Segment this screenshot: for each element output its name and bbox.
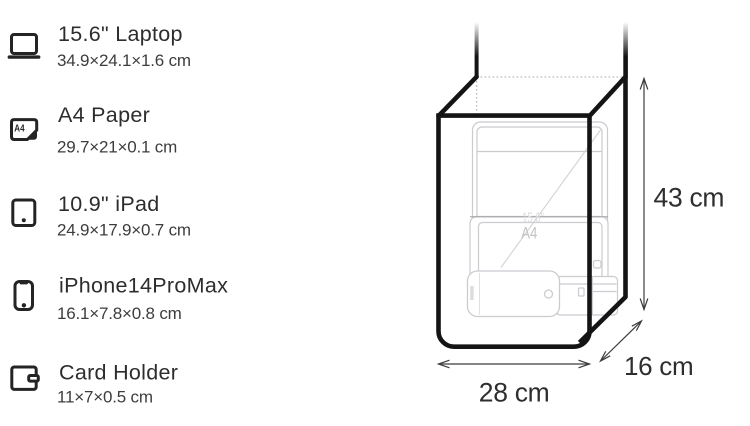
svg-text:34.9×24.1×1.6 cm: 34.9×24.1×1.6 cm <box>57 51 191 70</box>
svg-text:15.6" Laptop: 15.6" Laptop <box>58 22 183 46</box>
svg-text:A4: A4 <box>14 123 25 134</box>
svg-text:29.7×21×0.1 cm: 29.7×21×0.1 cm <box>57 137 177 156</box>
svg-text:43 cm: 43 cm <box>654 183 725 213</box>
svg-text:A4: A4 <box>521 225 537 243</box>
svg-text:24.9×17.9×0.7 cm: 24.9×17.9×0.7 cm <box>57 221 191 240</box>
svg-text:16 cm: 16 cm <box>624 351 693 381</box>
svg-text:11×7×0.5 cm: 11×7×0.5 cm <box>57 388 153 407</box>
svg-text:10.9" iPad: 10.9" iPad <box>58 192 159 216</box>
svg-text:iPhone14ProMax: iPhone14ProMax <box>59 273 228 297</box>
svg-text:Card Holder: Card Holder <box>59 361 178 385</box>
svg-text:A4 Paper: A4 Paper <box>58 103 150 127</box>
svg-text:28 cm: 28 cm <box>479 377 550 407</box>
svg-text:16.1×7.8×0.8 cm: 16.1×7.8×0.8 cm <box>57 304 182 323</box>
